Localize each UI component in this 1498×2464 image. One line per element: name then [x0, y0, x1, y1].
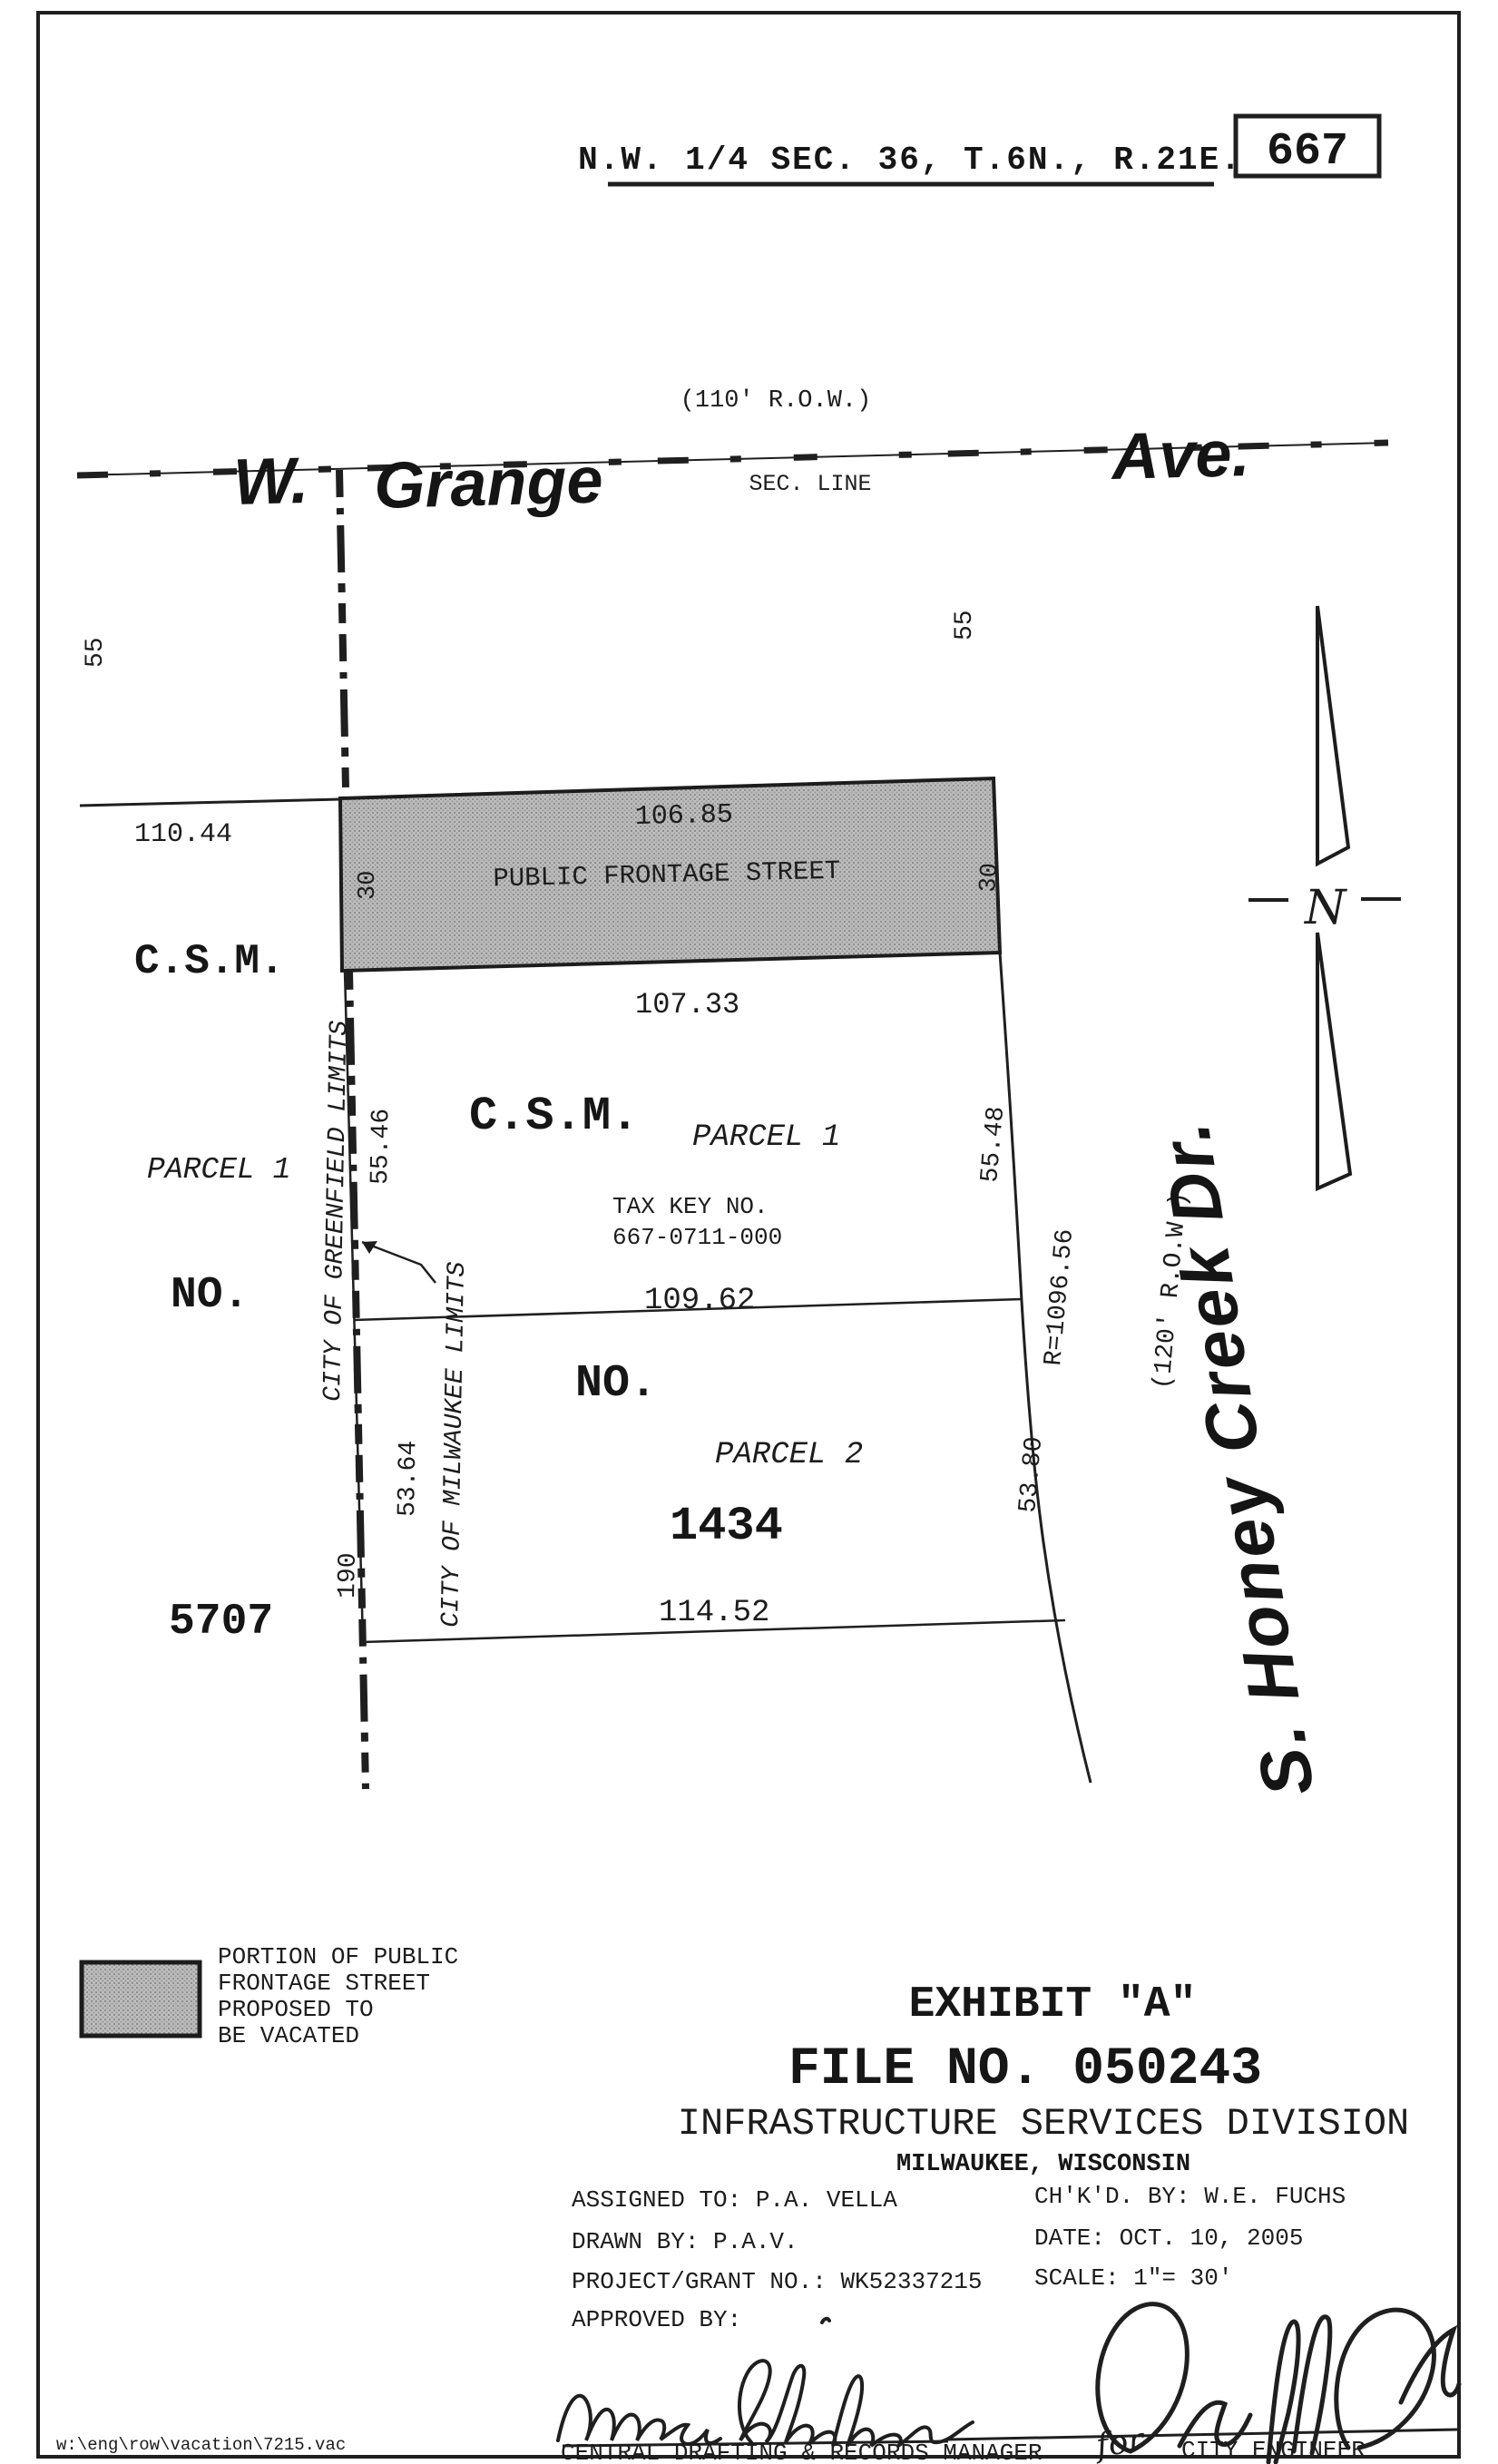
- north-arrow-upper-icon: [1317, 606, 1348, 864]
- tax-key-label: TAX KEY NO.: [612, 1193, 769, 1220]
- city-state: MILWAUKEE, WISCONSIN: [896, 2151, 1190, 2178]
- section-line-label: SEC. LINE: [749, 471, 871, 497]
- file-number: FILE NO. 050243: [788, 2040, 1262, 2099]
- drawn-by: DRAWN BY: P.A.V.: [572, 2228, 798, 2255]
- dim-110-44: 110.44: [134, 819, 232, 850]
- dim-55-46: 55.46: [367, 1109, 396, 1186]
- honey-creek-row-curve: [994, 778, 1091, 1783]
- legend-line-4: BE VACATED: [218, 2022, 359, 2049]
- sheet-number: 667: [1267, 126, 1348, 178]
- legend-line-2: FRONTAGE STREET: [218, 1970, 430, 1997]
- dim-114-52: 114.52: [659, 1596, 769, 1630]
- left-signature-stroke-1: [558, 2396, 720, 2444]
- greenfield-limits-label: CITY OF GREENFIELD LIMITS: [319, 1020, 354, 1402]
- dim-53-64: 53.64: [394, 1441, 423, 1518]
- frontage-width-left: 30: [355, 871, 382, 900]
- dim-53-80: 53.80: [1014, 1435, 1049, 1513]
- checked-by: CH'K'D. BY: W.E. FUCHS: [1034, 2183, 1346, 2210]
- right-signature-note: for: [1092, 2421, 1148, 2464]
- csm-center-no: NO.: [575, 1358, 657, 1410]
- grange-row-note: (110' R.O.W.): [680, 387, 872, 415]
- csm-left-number: 5707: [169, 1598, 273, 1647]
- north-arrow-lower-icon: [1317, 933, 1350, 1188]
- approved-by: APPROVED BY:: [572, 2306, 741, 2333]
- grange-ave-suffix: Ave.: [1109, 417, 1250, 494]
- plat-exhibit-sheet: N.W. 1/4 SEC. 36, T.6N., R.21E. 667 W. G…: [0, 0, 1498, 2464]
- dim-55-48: 55.48: [976, 1105, 1011, 1183]
- csm-left-parcel: PARCEL 1: [147, 1153, 290, 1187]
- right-signature-title: CITY ENGINEER: [1181, 2437, 1366, 2464]
- frontage-bottom-dim: 107.33: [635, 988, 739, 1022]
- left-signature-stroke-2: [739, 2361, 973, 2446]
- date: DATE: OCT. 10, 2005: [1034, 2224, 1303, 2252]
- grange-ave-prefix: W.: [232, 445, 309, 519]
- csm-center-title: C.S.M.: [469, 1090, 639, 1143]
- dim-radius: R=1096.56: [1040, 1227, 1080, 1366]
- north-arrow: N: [1248, 606, 1401, 1188]
- dim-190: 190: [334, 1552, 363, 1599]
- division-title: INFRASTRUCTURE SERVICES DIVISION: [678, 2102, 1410, 2146]
- csm-center-parcel2: PARCEL 2: [715, 1438, 863, 1472]
- csm-center-parcel1: PARCEL 1: [692, 1120, 840, 1155]
- left-signature-title: CENTRAL DRAFTING & RECORDS MANAGER: [561, 2440, 1043, 2464]
- tax-key-number: 667-0711-000: [612, 1224, 782, 1251]
- legend-line-3: PROPOSED TO: [218, 1996, 374, 2023]
- dim-55-mid: 55: [951, 610, 979, 640]
- milwaukee-limits-label: CITY OF MILWAUKEE LIMITS: [437, 1261, 472, 1628]
- plat-drawing: N.W. 1/4 SEC. 36, T.6N., R.21E. 667 W. G…: [0, 0, 1498, 2464]
- grange-ave-name: Grange: [373, 444, 603, 523]
- exhibit-title: EXHIBIT "A": [909, 1980, 1197, 2029]
- legend-line-1: PORTION OF PUBLIC: [218, 1943, 458, 1970]
- scale: SCALE: 1"= 30': [1034, 2264, 1232, 2292]
- project-grant-no: PROJECT/GRANT NO.: WK52337215: [572, 2268, 982, 2295]
- left-signature-dot: [822, 2319, 829, 2322]
- assigned-to: ASSIGNED TO: P.A. VELLA: [572, 2186, 897, 2214]
- dim-55-left: 55: [82, 637, 110, 668]
- north-label: N: [1303, 881, 1347, 935]
- milwaukee-limits-leader-line: [362, 1242, 436, 1283]
- csm-center-number: 1434: [670, 1500, 783, 1553]
- csm-left-no: NO.: [171, 1271, 249, 1320]
- frontage-top-dim: 106.85: [634, 800, 733, 833]
- row-south-line: [80, 799, 340, 806]
- drawing-file-path: w:\eng\row\vacation\7215.vac: [56, 2435, 346, 2455]
- right-signature-stroke-3: [1336, 2310, 1459, 2448]
- legend-shaded-swatch: [82, 1962, 200, 2036]
- csm-left-title: C.S.M.: [134, 938, 285, 985]
- section-title: N.W. 1/4 SEC. 36, T.6N., R.21E.: [578, 142, 1242, 179]
- dim-109-62: 109.62: [644, 1284, 755, 1318]
- honey-creek-street-name: S. Honey Creek Dr.: [1143, 1116, 1329, 1802]
- frontage-width-right: 30: [975, 862, 1004, 893]
